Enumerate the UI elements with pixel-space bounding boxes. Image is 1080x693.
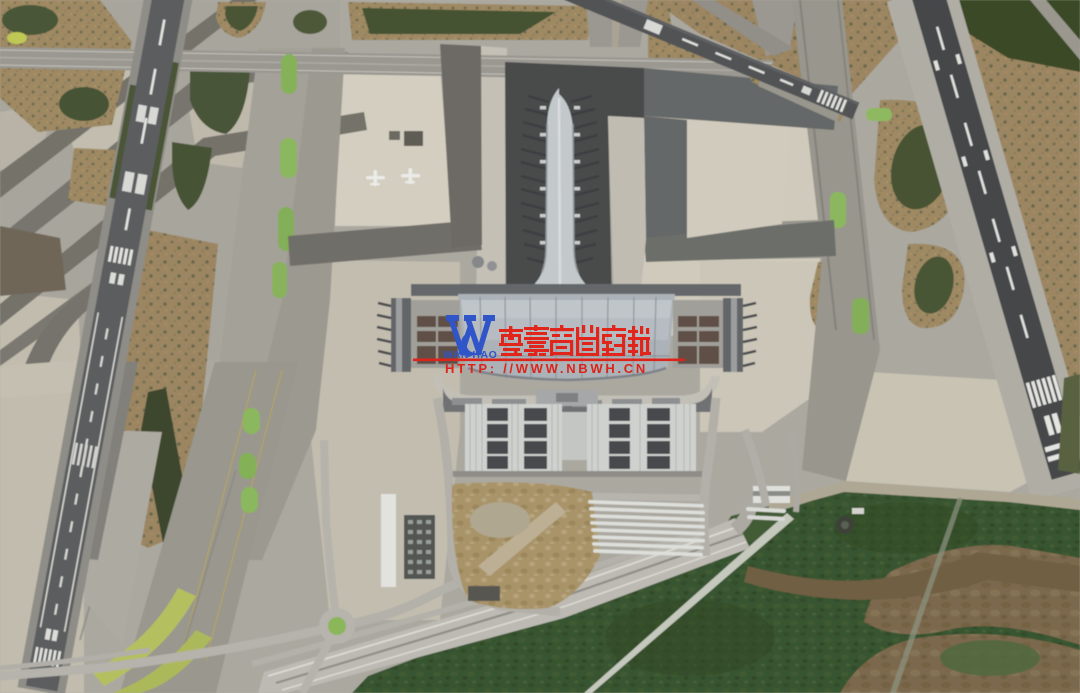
svg-text:HTTP: //WWW.NBWH.CN: HTTP: //WWW.NBWH.CN — [445, 361, 648, 376]
